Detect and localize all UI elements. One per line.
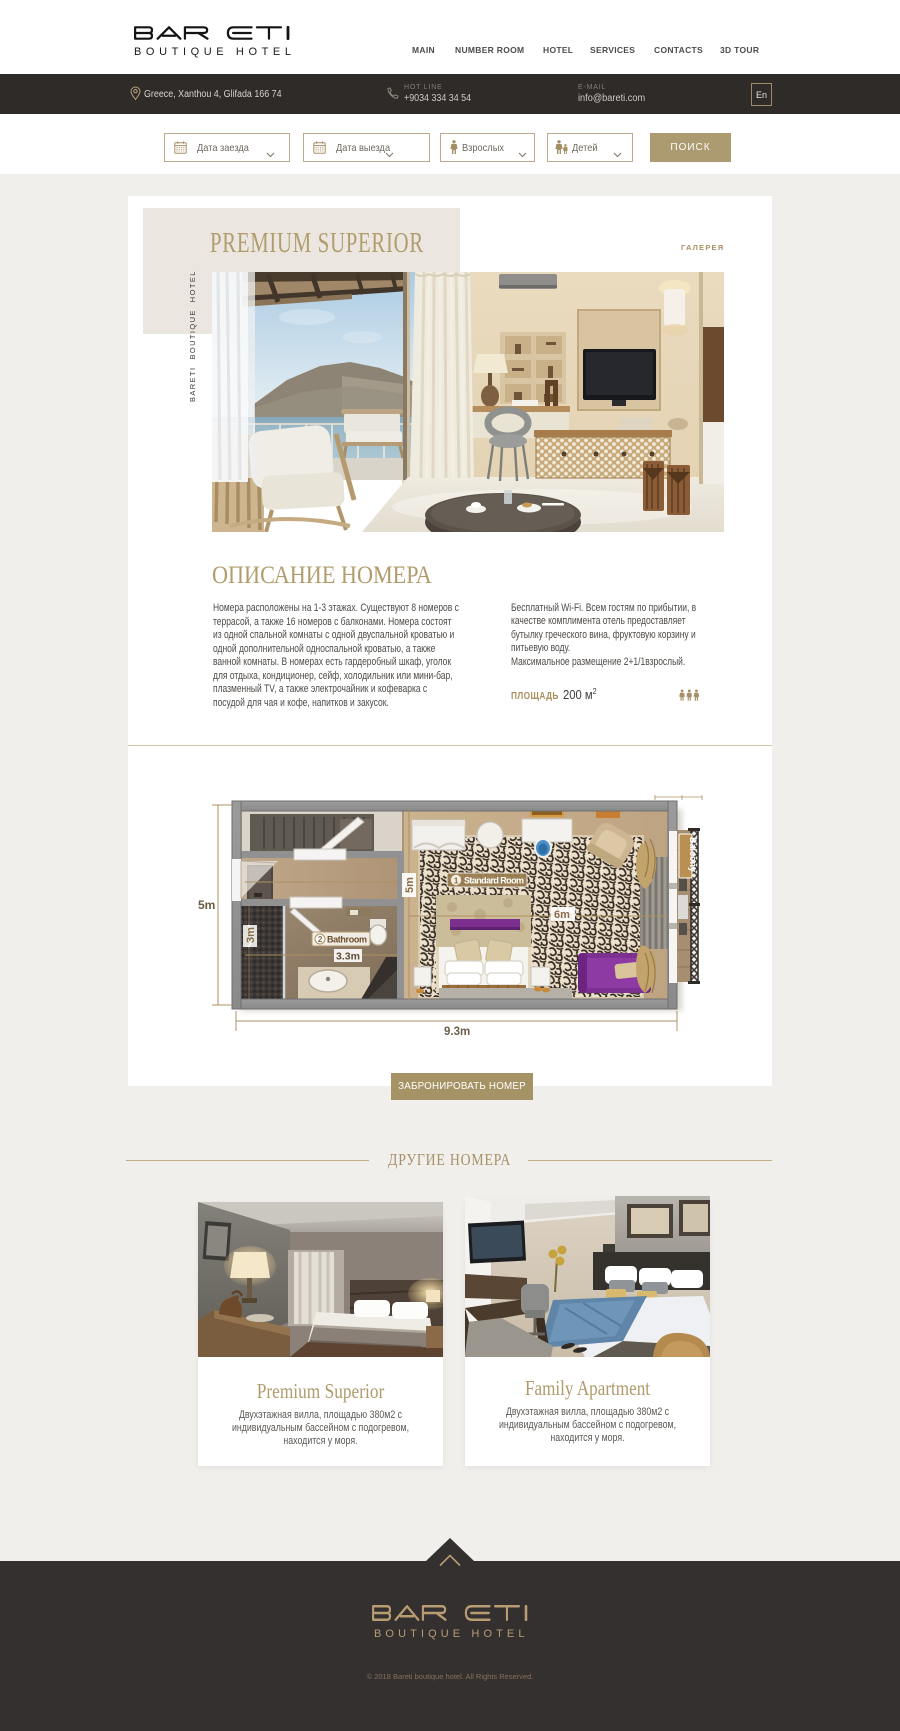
svg-text:3.3m: 3.3m	[336, 951, 360, 963]
svg-text:5m: 5m	[198, 898, 215, 912]
svg-text:6m: 6m	[554, 909, 570, 921]
svg-text:1: 1	[454, 875, 459, 885]
svg-text:Standard Room: Standard Room	[464, 876, 524, 886]
svg-text:Balcony: Balcony	[688, 837, 698, 872]
svg-text:Bathroom: Bathroom	[327, 935, 367, 945]
svg-text:3m: 3m	[245, 927, 257, 943]
svg-text:5m: 5m	[404, 877, 416, 893]
svg-text:2: 2	[318, 934, 323, 944]
svg-text:9.3m: 9.3m	[444, 1026, 470, 1038]
